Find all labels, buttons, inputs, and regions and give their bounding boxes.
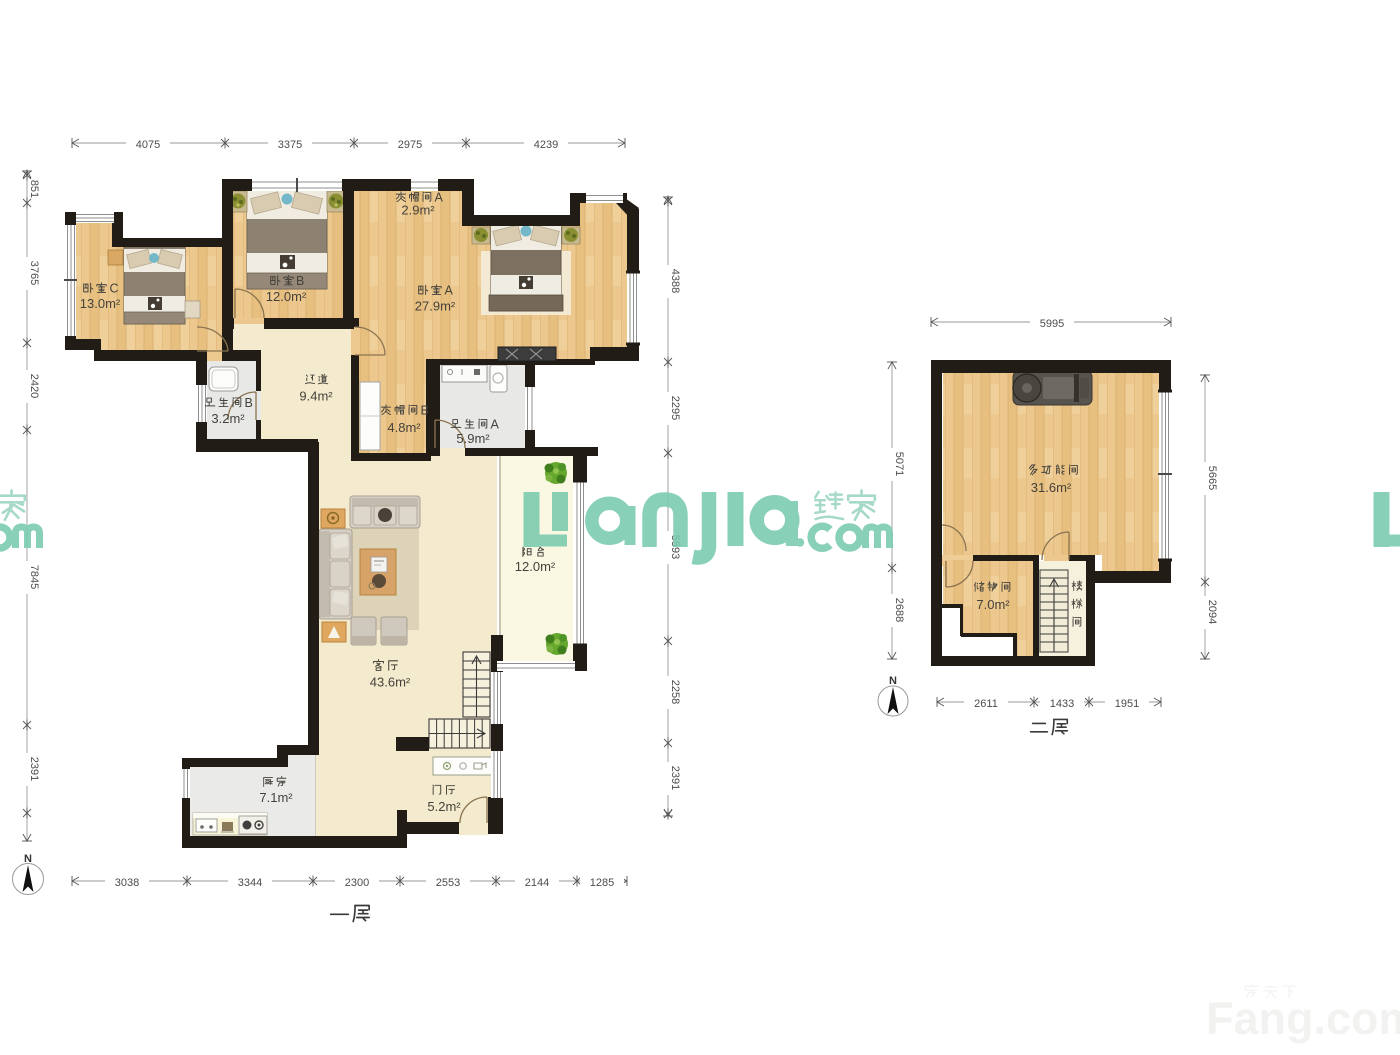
svg-text:N: N — [889, 675, 897, 687]
svg-text:3375: 3375 — [278, 139, 302, 151]
svg-text:A: A — [491, 418, 500, 432]
svg-text:Fang.com: Fang.com — [1206, 993, 1400, 1044]
svg-text:4.8m²: 4.8m² — [387, 420, 421, 435]
svg-text:B: B — [421, 404, 429, 418]
svg-text:2144: 2144 — [525, 877, 549, 889]
svg-text:2.9m²: 2.9m² — [401, 203, 435, 218]
svg-text:1285: 1285 — [590, 877, 614, 889]
svg-text:2094: 2094 — [1206, 600, 1218, 624]
svg-text:5665: 5665 — [1206, 466, 1218, 490]
svg-text:2295: 2295 — [669, 396, 681, 420]
svg-text:2611: 2611 — [974, 698, 998, 710]
svg-text:B: B — [245, 396, 253, 410]
svg-text:2688: 2688 — [893, 598, 905, 622]
svg-text:4239: 4239 — [534, 139, 558, 151]
svg-text:1951: 1951 — [1115, 698, 1139, 710]
svg-text:2300: 2300 — [345, 877, 369, 889]
svg-text:31.6m²: 31.6m² — [1031, 480, 1072, 495]
svg-text:7.0m²: 7.0m² — [976, 597, 1010, 612]
svg-text:5071: 5071 — [893, 452, 905, 476]
svg-text:2975: 2975 — [398, 139, 422, 151]
svg-text:5.2m²: 5.2m² — [427, 799, 461, 814]
svg-text:12.0m²: 12.0m² — [515, 559, 556, 574]
svg-text:4075: 4075 — [136, 139, 160, 151]
svg-text:A: A — [445, 284, 454, 298]
svg-text:3038: 3038 — [115, 877, 139, 889]
svg-text:7845: 7845 — [28, 565, 40, 589]
svg-text:851: 851 — [28, 180, 40, 198]
svg-text:2391: 2391 — [669, 766, 681, 790]
svg-text:7.1m²: 7.1m² — [259, 790, 293, 805]
svg-text:5995: 5995 — [1040, 318, 1064, 330]
svg-text:3344: 3344 — [238, 877, 262, 889]
svg-text:12.0m²: 12.0m² — [266, 289, 307, 304]
svg-text:1433: 1433 — [1050, 698, 1074, 710]
svg-text:C: C — [110, 282, 119, 296]
svg-text:4388: 4388 — [669, 269, 681, 293]
svg-text:2420: 2420 — [28, 374, 40, 398]
svg-text:B: B — [296, 274, 304, 288]
svg-text:27.9m²: 27.9m² — [415, 299, 456, 314]
svg-text:2391: 2391 — [28, 757, 40, 781]
svg-text:13.0m²: 13.0m² — [80, 296, 121, 311]
svg-text:2553: 2553 — [436, 877, 460, 889]
svg-text:9.4m²: 9.4m² — [299, 389, 333, 404]
svg-text:3765: 3765 — [28, 261, 40, 285]
svg-text:43.6m²: 43.6m² — [370, 675, 411, 690]
svg-text:5.9m²: 5.9m² — [456, 431, 490, 446]
svg-text:2258: 2258 — [669, 680, 681, 704]
svg-text:3.2m²: 3.2m² — [211, 411, 245, 426]
svg-text:A: A — [435, 191, 444, 205]
